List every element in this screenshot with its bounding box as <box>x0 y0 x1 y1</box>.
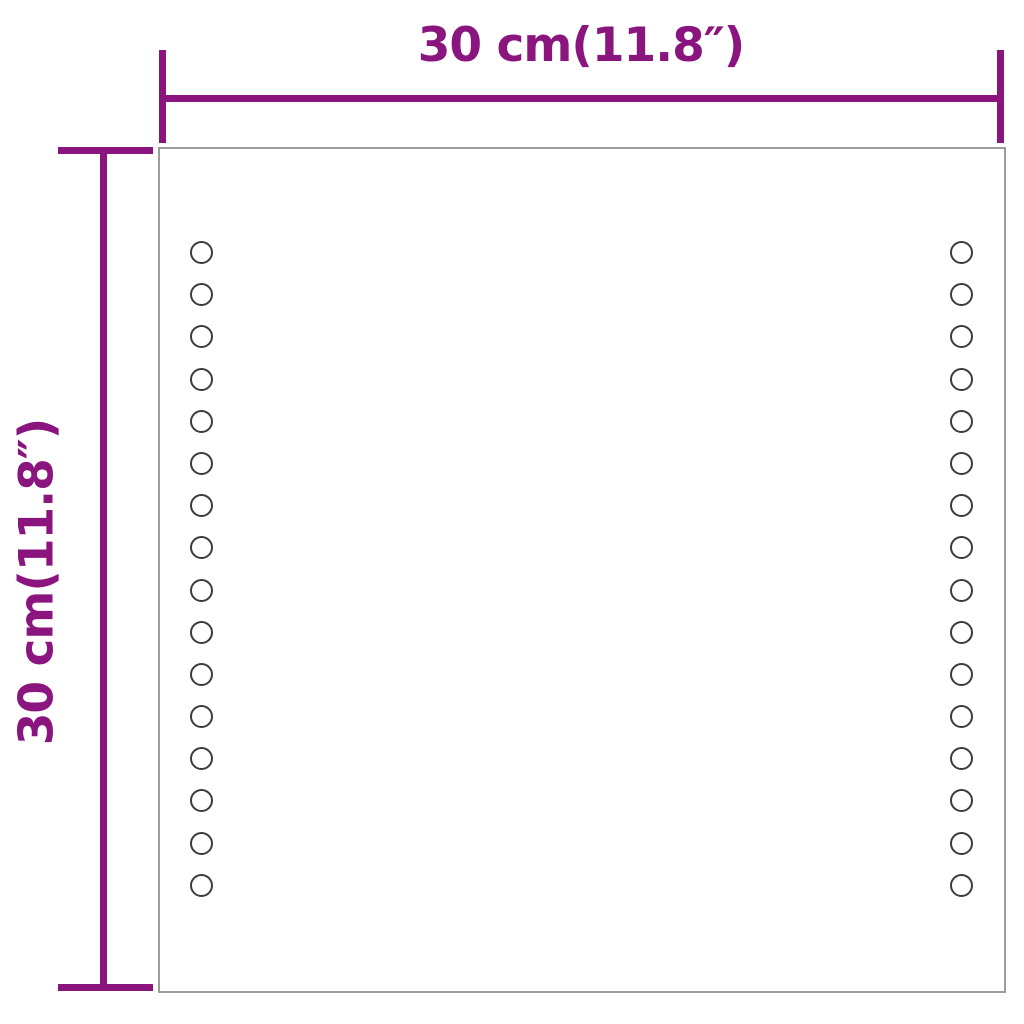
width-dimension-tick-right <box>997 50 1004 143</box>
led-dot <box>190 874 213 897</box>
height-dimension-line <box>100 151 107 988</box>
led-dot <box>950 410 973 433</box>
led-dot <box>950 579 973 602</box>
width-dimension-label: 30 cm(11.8″) <box>418 22 745 69</box>
dimension-diagram: 30 cm(11.8″) 30 cm(11.8″) <box>0 0 1024 1024</box>
width-dimension-tick-left <box>159 50 166 143</box>
width-dimension-line <box>159 95 1004 102</box>
led-dot <box>190 789 213 812</box>
height-dimension-label: 30 cm(11.8″) <box>14 419 61 746</box>
led-dot <box>190 832 213 855</box>
led-dot <box>950 283 973 306</box>
led-dot <box>950 536 973 559</box>
led-dot <box>190 368 213 391</box>
led-dot <box>190 410 213 433</box>
mirror-outline <box>158 147 1006 993</box>
led-dot <box>950 494 973 517</box>
led-dot <box>950 368 973 391</box>
led-dot <box>190 283 213 306</box>
led-dot <box>950 832 973 855</box>
led-dot <box>950 663 973 686</box>
led-dot <box>190 241 213 264</box>
height-dimension-tick-bottom <box>58 984 153 991</box>
led-dot <box>950 874 973 897</box>
led-column-right <box>950 241 973 897</box>
led-dot <box>950 241 973 264</box>
led-dot <box>190 621 213 644</box>
led-dot <box>190 705 213 728</box>
led-dot <box>950 747 973 770</box>
led-dot <box>190 536 213 559</box>
led-column-left <box>190 241 213 897</box>
led-dot <box>950 452 973 475</box>
led-dot <box>190 452 213 475</box>
led-dot <box>950 621 973 644</box>
led-dot <box>190 579 213 602</box>
led-dot <box>950 789 973 812</box>
led-dot <box>190 663 213 686</box>
height-dimension-tick-top <box>58 147 153 154</box>
led-dot <box>190 325 213 348</box>
led-dot <box>190 747 213 770</box>
led-dot <box>950 325 973 348</box>
led-dot <box>190 494 213 517</box>
led-dot <box>950 705 973 728</box>
